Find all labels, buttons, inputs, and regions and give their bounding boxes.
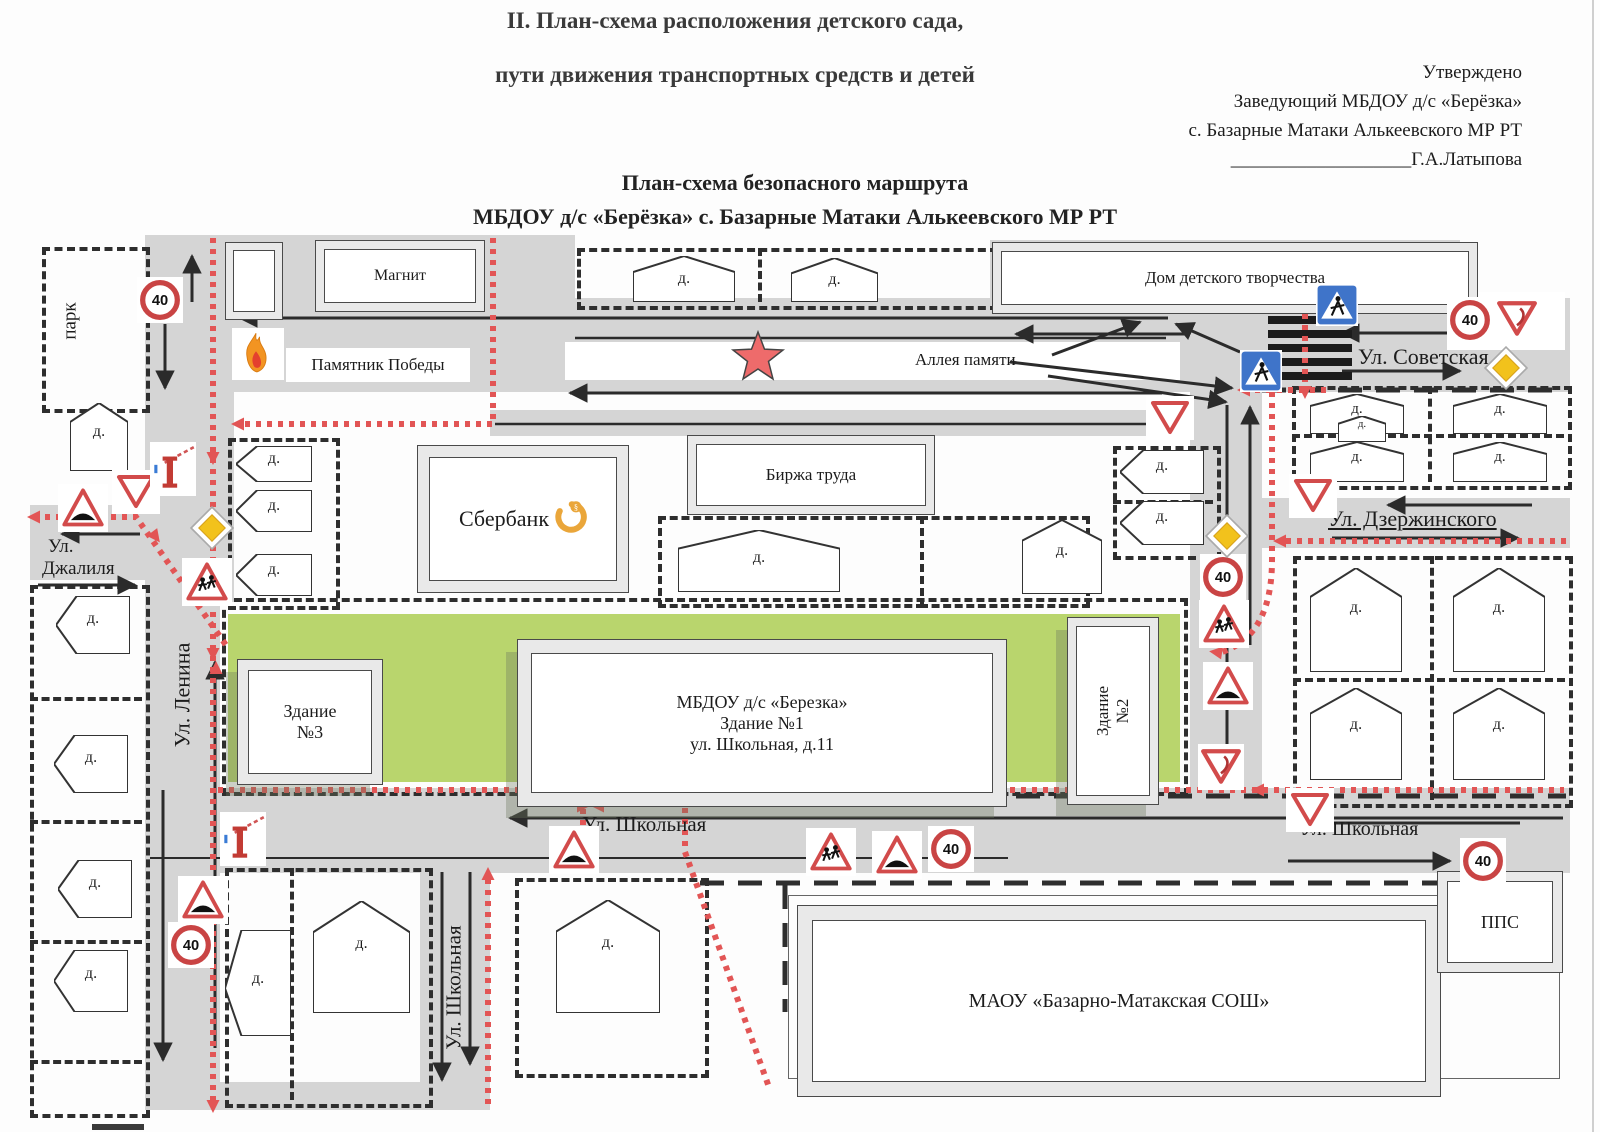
park-label: парк <box>60 302 82 339</box>
house: д. <box>1453 394 1547 434</box>
svg-text:40: 40 <box>152 293 168 309</box>
school-building: МАОУ «Базарно-Матакская СОШ» <box>798 906 1440 1096</box>
house: д. <box>1338 416 1386 442</box>
speed-limit-40-sign: 40 <box>1447 297 1493 343</box>
zdanie2-building: Здание №2 <box>1068 618 1158 804</box>
dom-tvorchestva-label: Дом детского творчества <box>1145 268 1325 288</box>
school-label: МАОУ «Базарно-Матакская СОШ» <box>969 990 1270 1013</box>
give-way-sign <box>1286 788 1334 832</box>
pedestrian-crossing-sign <box>1316 284 1358 326</box>
zdanie3-label-line2: №3 <box>297 722 323 743</box>
house: д. <box>1453 442 1547 482</box>
house: д. <box>54 735 128 793</box>
speed-bump-sign <box>178 876 228 924</box>
street-dzhalilya-line2: Джалиля <box>42 558 115 580</box>
pamyatnik-label: Памятник Победы <box>311 355 444 375</box>
zdanie3-building: Здание №3 <box>238 660 382 784</box>
house: д. <box>225 930 291 1036</box>
house: д. <box>70 403 128 471</box>
approval-block: Утверждено Заведующий МБДОУ д/с «Берёзка… <box>1052 58 1522 174</box>
sberbank-building: Сбербанк § <box>418 446 628 592</box>
left-column-sep1 <box>30 697 142 701</box>
house: д. <box>313 901 410 1013</box>
house: д. <box>633 256 735 302</box>
svg-text:40: 40 <box>943 842 959 858</box>
speed-limit-40-sign: 40 <box>168 922 214 968</box>
give-way-curve-sign <box>1198 744 1244 790</box>
house: д. <box>1120 501 1204 545</box>
house: д. <box>1310 568 1402 672</box>
magnit-building: Магнит <box>316 241 484 311</box>
house: д. <box>1453 568 1545 672</box>
svg-text:40: 40 <box>1215 570 1231 586</box>
alleya-label: Аллея памяти <box>915 350 1016 370</box>
pps-label: ППС <box>1481 912 1519 933</box>
sberbank-logo-icon: § <box>553 500 587 539</box>
road-above-sberbank <box>490 410 1190 436</box>
map-subtitle-line1: План-схема безопасного маршрута <box>0 170 1590 196</box>
house: д. <box>1120 450 1204 494</box>
house: д. <box>678 530 840 592</box>
barrier-gate-icon <box>150 442 196 496</box>
speed-limit-40-sign: 40 <box>928 826 974 872</box>
left-column-sep3 <box>30 940 142 944</box>
mbdou-building: МБДОУ д/с «Березка» Здание №1 ул. Школьн… <box>518 640 1006 806</box>
house: д. <box>236 490 312 532</box>
zdanie2-label: Здание №2 <box>1093 674 1133 748</box>
top-right-grid-hsep <box>1292 434 1564 438</box>
dom-tvorchestva-building: Дом детского творчества <box>993 243 1477 313</box>
scan-mark <box>92 1124 144 1130</box>
park-boundary <box>42 247 150 413</box>
children-warning-sign <box>182 558 232 606</box>
speed-bump-sign <box>1203 662 1253 710</box>
plan-schema-page: II. План-схема расположения детского сад… <box>0 0 1600 1132</box>
birzha-building: Биржа труда <box>688 436 934 514</box>
give-way-curve-sign <box>1494 296 1540 342</box>
street-dzerzhinskogo: Ул. Дзержинского <box>1328 506 1497 532</box>
mbdou-label-line2: Здание №1 <box>720 713 804 734</box>
page-title-line1: II. План-схема расположения детского сад… <box>0 8 1470 34</box>
magnit-side-building <box>226 243 282 319</box>
give-way-sign <box>1289 474 1337 518</box>
birzha-label: Биржа труда <box>766 465 856 485</box>
speed-bump-sign <box>58 484 108 532</box>
top-houses-separator <box>758 248 762 302</box>
eternal-flame-icon <box>238 330 274 381</box>
house: д. <box>236 446 312 482</box>
mbdou-label-line3: ул. Школьная, д.11 <box>690 734 834 755</box>
house: д. <box>236 554 312 596</box>
svg-text:40: 40 <box>1462 313 1478 329</box>
street-sovetskaya: Ул. Советская <box>1358 344 1489 370</box>
children-warning-sign <box>1199 600 1249 648</box>
speed-bump-sign <box>549 826 599 874</box>
speed-limit-40-sign: 40 <box>137 277 183 323</box>
speed-limit-40-sign: 40 <box>1460 838 1506 884</box>
barrier-gate-icon <box>220 812 266 866</box>
street-shkolnaya-center: Ул. Школьная <box>582 812 706 837</box>
street-shkolnaya-vertical: Ул. Школьная <box>442 925 467 1049</box>
approval-word: Утверждено <box>1052 58 1522 87</box>
svg-text:40: 40 <box>183 938 199 954</box>
svg-text:§: § <box>574 501 578 511</box>
speed-bump-sign <box>872 831 922 879</box>
house: д. <box>791 258 878 302</box>
zdanie3-label-line1: Здание <box>284 701 337 722</box>
bottom-right-grid-hsep <box>1293 678 1565 682</box>
house: д. <box>56 596 130 654</box>
street-lenina: Ул. Ленина <box>169 643 195 748</box>
sberbank-label: Сбербанк <box>459 506 549 532</box>
give-way-sign <box>1146 396 1194 440</box>
house: д. <box>556 900 660 1013</box>
map-subtitle-line2: МБДОУ д/с «Берёзка» с. Базарные Матаки А… <box>0 204 1590 230</box>
magnit-label: Магнит <box>374 267 426 285</box>
house: д. <box>58 860 132 918</box>
mbdou-label-line1: МБДОУ д/с «Березка» <box>677 692 848 713</box>
left-column-sep2 <box>30 820 142 824</box>
street-dzhalilya-line1: Ул. <box>48 536 74 558</box>
house: д. <box>54 950 128 1012</box>
approval-position: Заведующий МБДОУ д/с «Берёзка» <box>1052 87 1522 116</box>
alleya-strip <box>565 342 1180 380</box>
pamyatnik-label-strip: Памятник Победы <box>286 348 470 382</box>
speed-limit-40-sign: 40 <box>1200 554 1246 600</box>
left-column-sep4 <box>30 1060 142 1064</box>
priority-road-sign <box>1484 346 1528 390</box>
pps-building: ППС <box>1438 872 1562 972</box>
house: д. <box>1453 688 1545 780</box>
left-column-boundary <box>30 585 150 1118</box>
priority-road-sign <box>1205 514 1249 558</box>
house: д. <box>1310 688 1402 780</box>
children-warning-sign <box>806 828 856 876</box>
pedestrian-crossing-sign <box>1240 350 1282 392</box>
house: д. <box>1022 520 1102 594</box>
scan-edge-line <box>1592 0 1594 1132</box>
approval-org: с. Базарные Матаки Алькеевского МР РТ <box>1052 116 1522 145</box>
priority-road-sign <box>190 506 234 550</box>
svg-text:40: 40 <box>1475 854 1491 870</box>
